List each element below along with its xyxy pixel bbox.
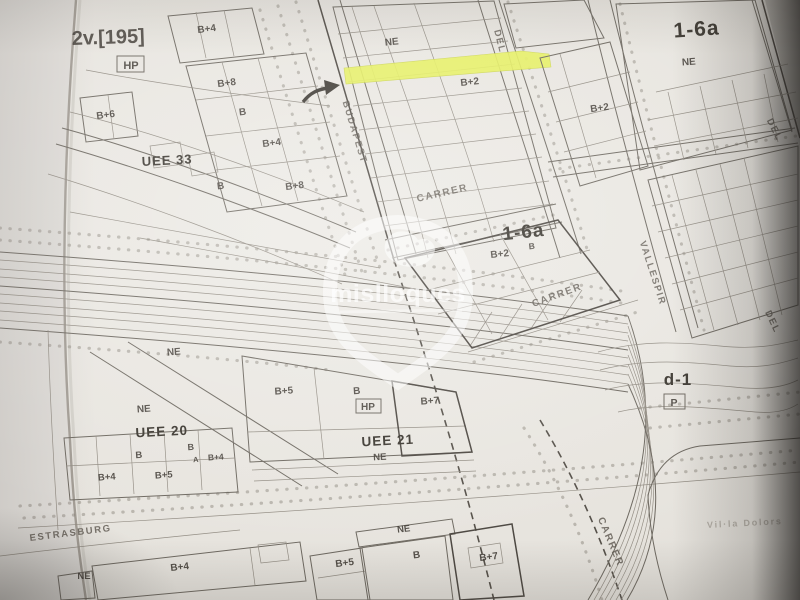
sheet-ref-label: 2v.[195] <box>71 25 145 50</box>
height-label-b6: B+6 <box>96 109 116 122</box>
height-label-u20-b4: B+4 <box>208 451 225 462</box>
ne-label-bottom-mid: NE <box>396 523 410 536</box>
parking-badge: P <box>670 397 677 409</box>
zone-label-d1: d-1 <box>664 370 693 389</box>
height-label-bt-b7: B+7 <box>479 551 499 564</box>
height-label-b8: B+8 <box>217 77 237 90</box>
zone-label-uee21: UEE 21 <box>361 432 414 450</box>
map-photo: 2v.[195] HP B+4 B+8 B+6 B B+4 B B+8 UEE … <box>0 0 800 600</box>
hp-badge-mid: HP <box>361 402 375 413</box>
height-label-b-mid: B <box>528 241 535 252</box>
zone-label-16a-top: 1-6a <box>673 16 721 42</box>
watermark-text: mislloques <box>330 280 466 308</box>
street-label-del-right-mid: DEL <box>762 309 782 335</box>
ne-label-uee20-a: NE <box>167 347 182 359</box>
height-label-b4b: B+4 <box>262 137 282 150</box>
ne-label-top-right: NE <box>682 57 697 69</box>
height-label-u20-b: B <box>135 450 143 461</box>
ne-label-bottom-left: NE <box>77 571 90 582</box>
highlighted-parcel <box>344 51 551 84</box>
height-label-b: B <box>238 107 247 119</box>
street-label-carrer-top: CARRER <box>416 182 470 205</box>
zone-label-16a-mid: 1-6a <box>501 220 545 245</box>
cadastral-map: 2v.[195] HP B+4 B+8 B+6 B B+4 B B+8 UEE … <box>0 0 800 600</box>
street-label-carrer-bottom: CARRER <box>595 516 626 569</box>
height-label-u20-a: A <box>193 455 200 464</box>
height-label-u20-bb: B <box>187 442 195 452</box>
height-label-bt-b4: B+4 <box>170 561 190 574</box>
direction-arrow <box>303 80 340 102</box>
height-label-bt-b: B <box>412 550 421 562</box>
zone-label-uee20: UEE 20 <box>135 423 188 441</box>
ne-label-top-center: NE <box>384 36 399 48</box>
height-label-u20-b4b: B+4 <box>98 471 117 483</box>
height-label-b4: B+4 <box>197 23 217 36</box>
height-label-b8b: B+8 <box>285 180 305 193</box>
height-label-u21-b5: B+5 <box>274 385 294 397</box>
hp-badge-top: HP <box>123 60 138 72</box>
ne-label-uee20-b: NE <box>137 404 152 416</box>
height-label-u21-b: B <box>353 386 361 397</box>
height-label-u20-b5: B+5 <box>155 469 174 481</box>
street-label-vallespir: VALLESPIR <box>637 240 668 307</box>
ne-label-uee21: NE <box>373 452 387 464</box>
height-label-bb: B <box>216 181 225 193</box>
site-note-label: Vil·la Dolors <box>707 516 783 530</box>
height-label-b2-mid: B+2 <box>490 248 510 261</box>
height-label-b2-center: B+2 <box>460 76 480 89</box>
height-label-b2-right: B+2 <box>590 102 610 116</box>
zone-label-uee33: UEE 33 <box>141 151 193 169</box>
height-label-bt-b5: B+5 <box>335 557 355 570</box>
height-label-u21-b7: B+7 <box>420 395 440 407</box>
